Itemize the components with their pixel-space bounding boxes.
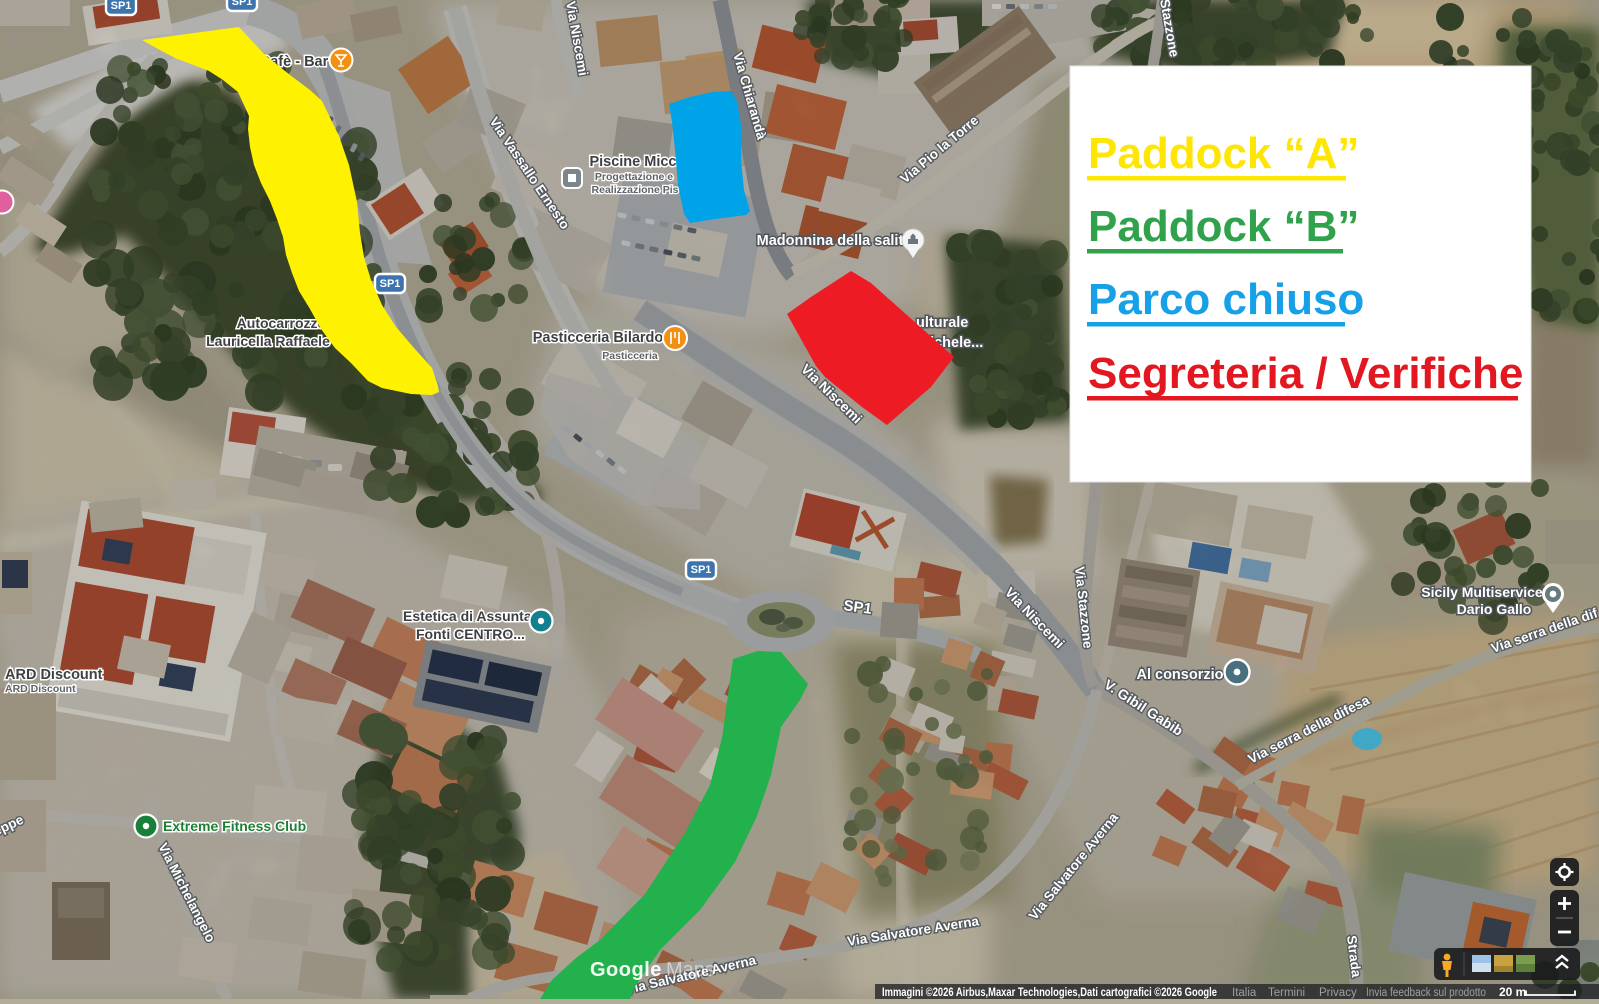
- svg-text:Fonti CENTRO...: Fonti CENTRO...: [416, 626, 525, 642]
- svg-text:Dario Gallo: Dario Gallo: [1457, 601, 1532, 617]
- svg-text:Termini: Termini: [1268, 987, 1305, 999]
- svg-text:Estetica di Assunta: Estetica di Assunta: [403, 608, 532, 624]
- svg-text:Privacy: Privacy: [1319, 987, 1357, 999]
- svg-text:SP1: SP1: [380, 278, 401, 290]
- svg-text:Lauricella Raffaele: Lauricella Raffaele: [206, 333, 330, 349]
- svg-text:Paddock “B”: Paddock “B”: [1088, 202, 1359, 251]
- svg-text:ARD Discount: ARD Discount: [5, 667, 103, 683]
- svg-text:Realizzazione Pis: Realizzazione Pis: [592, 184, 679, 196]
- svg-text:ARD Discount: ARD Discount: [5, 683, 76, 695]
- svg-text:Google: Google: [590, 959, 662, 981]
- svg-text:20 m: 20 m: [1499, 985, 1526, 999]
- svg-text:Progettazione e: Progettazione e: [595, 171, 673, 183]
- svg-text:Immagini ©2026 Airbus,Maxar Te: Immagini ©2026 Airbus,Maxar Technologies…: [882, 987, 1217, 999]
- svg-text:Parco chiuso: Parco chiuso: [1088, 275, 1364, 324]
- svg-text:Madonnina della salita: Madonnina della salita: [757, 233, 913, 249]
- svg-text:Sicily Multiservice: Sicily Multiservice: [1421, 584, 1543, 600]
- svg-text:SP1: SP1: [111, 0, 132, 12]
- svg-text:Autocarrozze: Autocarrozze: [237, 315, 326, 331]
- svg-text:SP1: SP1: [232, 0, 253, 8]
- svg-text:Piscine Micci: Piscine Micci: [589, 154, 680, 170]
- svg-text:Pasticceria Bilardo: Pasticceria Bilardo: [533, 330, 664, 346]
- svg-text:Paddock “A”: Paddock “A”: [1088, 129, 1359, 178]
- svg-text:ulturale: ulturale: [916, 315, 968, 331]
- svg-text:Extreme Fitness Club: Extreme Fitness Club: [163, 818, 306, 834]
- svg-text:Segreteria / Verifiche: Segreteria / Verifiche: [1088, 349, 1523, 398]
- svg-text:Pasticceria: Pasticceria: [602, 350, 658, 362]
- svg-text:Italia: Italia: [1232, 987, 1257, 999]
- svg-text:SP1: SP1: [691, 564, 712, 576]
- svg-text:Maps: Maps: [666, 959, 715, 981]
- svg-text:Invia feedback sul prodotto: Invia feedback sul prodotto: [1366, 987, 1486, 999]
- svg-text:Al consorzio: Al consorzio: [1136, 667, 1223, 683]
